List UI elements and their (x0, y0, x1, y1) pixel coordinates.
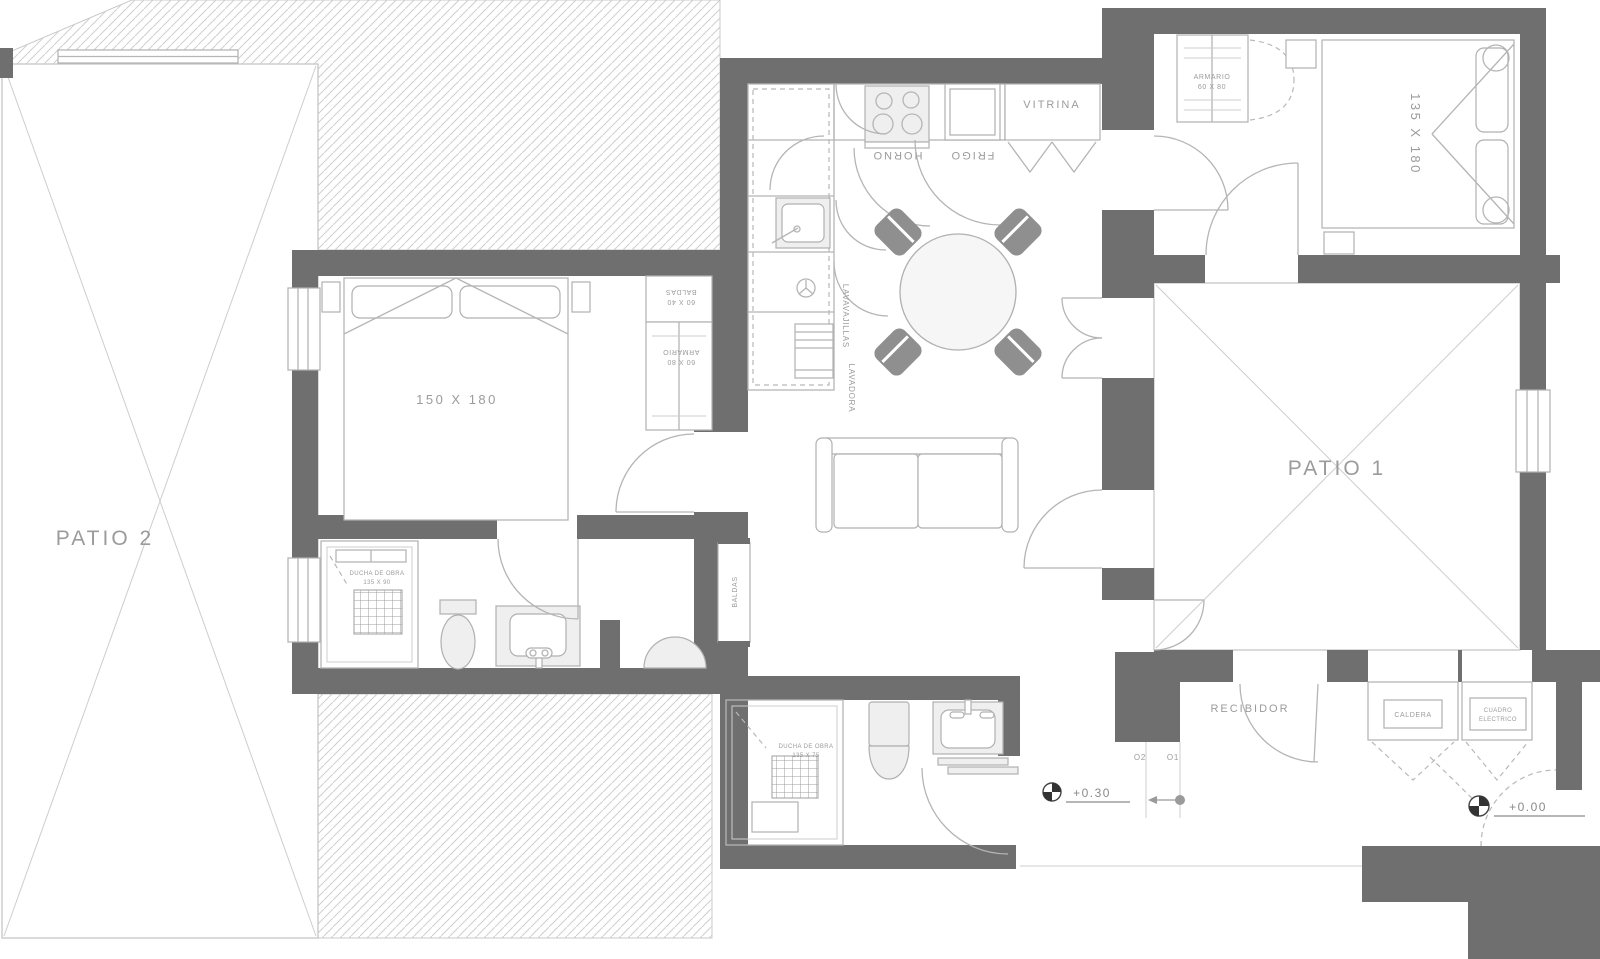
frigo-label: FRIGO (950, 149, 995, 161)
bed-135x180: 135 X 180 (1322, 40, 1514, 228)
floor-plan-svg: PATIO 2 PATIO 1 (0, 0, 1600, 959)
patio2-corner-wall (0, 48, 13, 78)
level-marker-000: +0.00 (1469, 796, 1585, 816)
patio2-label: PATIO 2 (56, 527, 154, 550)
cuadro-electrico-closet: CUADRO ELECTRICO (1462, 682, 1532, 780)
patio1-label: PATIO 1 (1288, 457, 1386, 480)
ducha1-size-label: 135 X 90 (363, 580, 390, 586)
recibidor-label: RECIBIDOR (1210, 703, 1289, 715)
horno-label: HORNO (872, 149, 923, 161)
level-000-label: +0.00 (1509, 800, 1547, 814)
dial-symbol (797, 279, 815, 297)
patio-2: PATIO 2 (0, 48, 318, 938)
closet-column: BALDAS 60 X 40 ARMARIO 60 X 80 (646, 276, 712, 430)
lavadora-label: LAVADORA (847, 364, 856, 413)
bedroom1-door (616, 434, 694, 512)
toilet-2 (869, 702, 909, 779)
patio-1: PATIO 1 (1154, 283, 1520, 650)
vitrina-label: VITRINA (1023, 99, 1080, 111)
level-030-label: +0.30 (1073, 786, 1111, 800)
ducha2-label: DUCHA DE OBRA (779, 744, 834, 750)
recibidor: RECIBIDOR CALDERA CUADRO ELECTRICO (1020, 682, 1556, 866)
baldas-label: BALDAS (665, 288, 696, 295)
dining-set (871, 205, 1045, 379)
baldas-niche: BALDAS (718, 538, 750, 647)
sink-2 (933, 700, 1003, 754)
cuadro-label-1: CUADRO (1484, 708, 1512, 714)
level-marker-030: +0.30 (1043, 783, 1130, 802)
patio1-window (1516, 390, 1550, 472)
baldas-size-label: 60 X 40 (667, 298, 695, 305)
shower2-drain (772, 756, 818, 798)
nightstand (322, 282, 340, 312)
vitrina-cabinet: VITRINA (1005, 84, 1100, 172)
armario2-label: ARMARIO (1194, 74, 1231, 81)
cooktop (865, 86, 929, 148)
shower1-drain (354, 590, 402, 634)
baldas-niche-label: BALDAS (732, 576, 739, 607)
armario1-label: ARMARIO (663, 348, 700, 355)
bed1-size-label: 150 X 180 (416, 392, 498, 407)
ducha1-label: DUCHA DE OBRA (350, 571, 405, 577)
kitchen-sink (772, 198, 830, 248)
cuadro-label-2: ELECTRICO (1479, 717, 1517, 723)
armario2-size-label: 60 X 80 (1198, 84, 1226, 91)
door-ref-o2: O2 (1134, 753, 1146, 762)
fridge (945, 84, 1000, 140)
lavavajillas-label: LAVAVAJILLAS (841, 284, 850, 348)
door-refs: O2 O1 (1134, 742, 1185, 818)
bathroom1-window (288, 558, 320, 642)
nightstand (1324, 232, 1354, 254)
caldera-closet: CALDERA (1368, 682, 1458, 780)
hatch-bottom-left (318, 694, 712, 938)
ducha2-size-label: 135 X 75 (792, 753, 819, 759)
floor-plan: PATIO 2 PATIO 1 (0, 0, 1600, 959)
bathroom-1: DUCHA DE OBRA 135 X 90 (321, 539, 706, 669)
bathroom-2: DUCHA DE OBRA 135 X 75 (726, 700, 1018, 854)
armario1-size-label: 60 X 80 (667, 358, 695, 365)
bed2-size-label: 135 X 180 (1408, 93, 1423, 175)
bedroom-1: 150 X 180 (322, 278, 590, 520)
toilet-1 (440, 600, 476, 669)
dining-table (900, 234, 1016, 350)
bedroom1-window (288, 288, 320, 370)
nightstand (572, 282, 590, 312)
bottom-right-mass (1362, 846, 1600, 959)
bedroom-2: ARMARIO 60 X 80 135 X 180 (1177, 35, 1514, 255)
caldera-label: CALDERA (1394, 712, 1431, 719)
patio2-top-window (58, 50, 238, 63)
washer-front (795, 324, 833, 378)
bathroom2-door (922, 758, 1018, 854)
sofa (816, 438, 1018, 532)
closet-bedroom2: ARMARIO 60 X 80 (1177, 35, 1294, 122)
sink-1 (496, 606, 580, 668)
door-ref-o1: O1 (1167, 753, 1179, 762)
nightstand (1286, 40, 1316, 68)
